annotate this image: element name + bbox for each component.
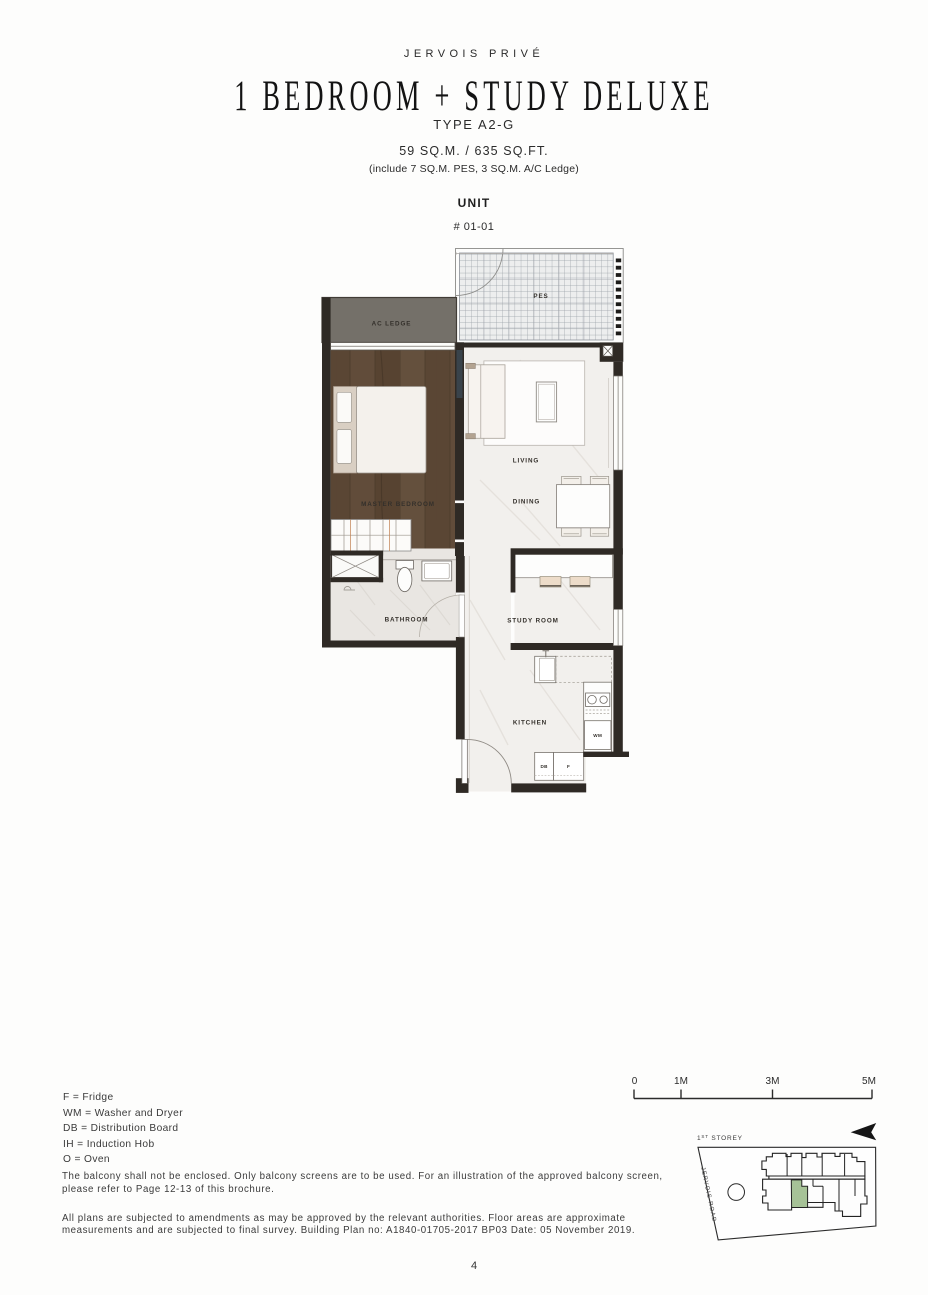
svg-text:PES: PES xyxy=(533,293,548,300)
svg-text:3M: 3M xyxy=(766,1076,780,1087)
svg-text:5M: 5M xyxy=(862,1076,876,1087)
svg-text:1ST STOREY: 1ST STOREY xyxy=(697,1134,743,1142)
svg-text:LIVING: LIVING xyxy=(513,458,539,465)
svg-text:F: F xyxy=(567,764,570,769)
svg-text:DB: DB xyxy=(540,764,548,769)
svg-text:0: 0 xyxy=(632,1076,638,1087)
svg-text:MASTER BEDROOM: MASTER BEDROOM xyxy=(361,501,435,508)
svg-text:STUDY ROOM: STUDY ROOM xyxy=(507,618,559,625)
svg-text:1M: 1M xyxy=(674,1076,688,1087)
svg-text:KITCHEN: KITCHEN xyxy=(513,720,547,727)
svg-text:DINING: DINING xyxy=(513,499,540,506)
svg-text:AC LEDGE: AC LEDGE xyxy=(372,321,412,328)
svg-text:WM: WM xyxy=(593,733,602,738)
svg-text:BATHROOM: BATHROOM xyxy=(385,617,429,624)
